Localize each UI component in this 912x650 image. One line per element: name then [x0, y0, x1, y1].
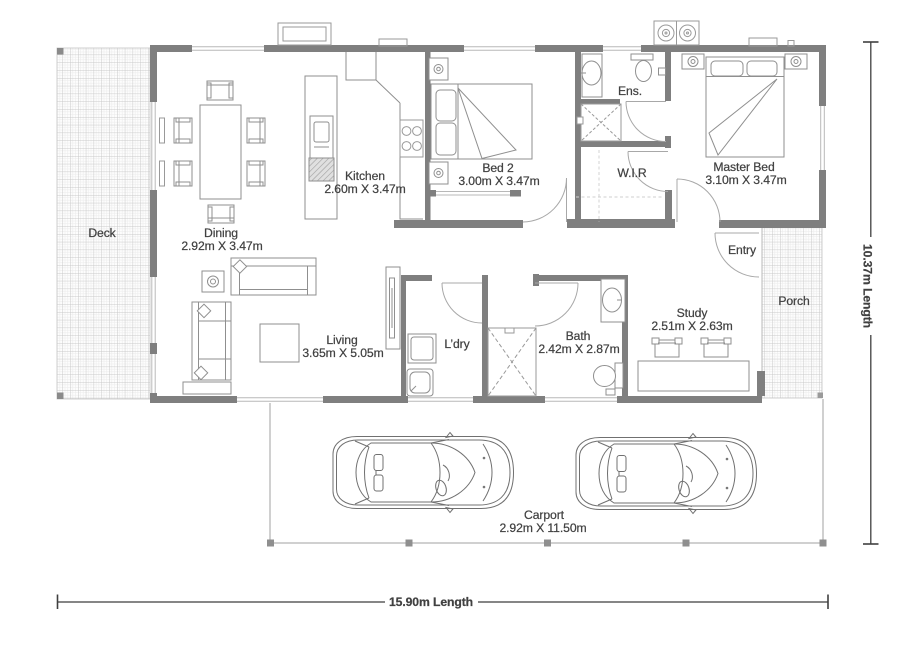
svg-text:Carport: Carport	[524, 508, 565, 522]
svg-text:2.42m X 2.87m: 2.42m X 2.87m	[538, 342, 619, 356]
svg-text:2.92m X 3.47m: 2.92m X 3.47m	[181, 239, 262, 253]
svg-text:Entry: Entry	[728, 243, 757, 257]
svg-text:Porch: Porch	[778, 294, 809, 308]
svg-text:L’dry: L’dry	[444, 337, 470, 351]
svg-text:Master Bed: Master Bed	[713, 160, 774, 174]
svg-text:Ens.: Ens.	[618, 84, 642, 98]
svg-text:15.90m Length: 15.90m Length	[389, 595, 473, 609]
svg-text:Living: Living	[326, 333, 357, 347]
svg-text:Kitchen: Kitchen	[345, 169, 385, 183]
svg-text:2.92m X 11.50m: 2.92m X 11.50m	[499, 521, 586, 535]
svg-text:Dining: Dining	[204, 226, 238, 240]
svg-text:2.51m X 2.63m: 2.51m X 2.63m	[651, 319, 732, 333]
svg-text:Bed 2: Bed 2	[482, 161, 514, 175]
svg-text:Bath: Bath	[566, 329, 591, 343]
svg-text:10.37m Length: 10.37m Length	[861, 244, 875, 328]
svg-text:2.60m X 3.47m: 2.60m X 3.47m	[324, 182, 405, 196]
svg-text:Study: Study	[677, 306, 709, 320]
svg-text:3.65m X 5.05m: 3.65m X 5.05m	[302, 346, 383, 360]
svg-text:W.I.R: W.I.R	[617, 166, 647, 180]
svg-text:Deck: Deck	[88, 226, 116, 240]
svg-text:3.10m X 3.47m: 3.10m X 3.47m	[705, 173, 786, 187]
svg-text:3.00m X 3.47m: 3.00m X 3.47m	[458, 174, 539, 188]
